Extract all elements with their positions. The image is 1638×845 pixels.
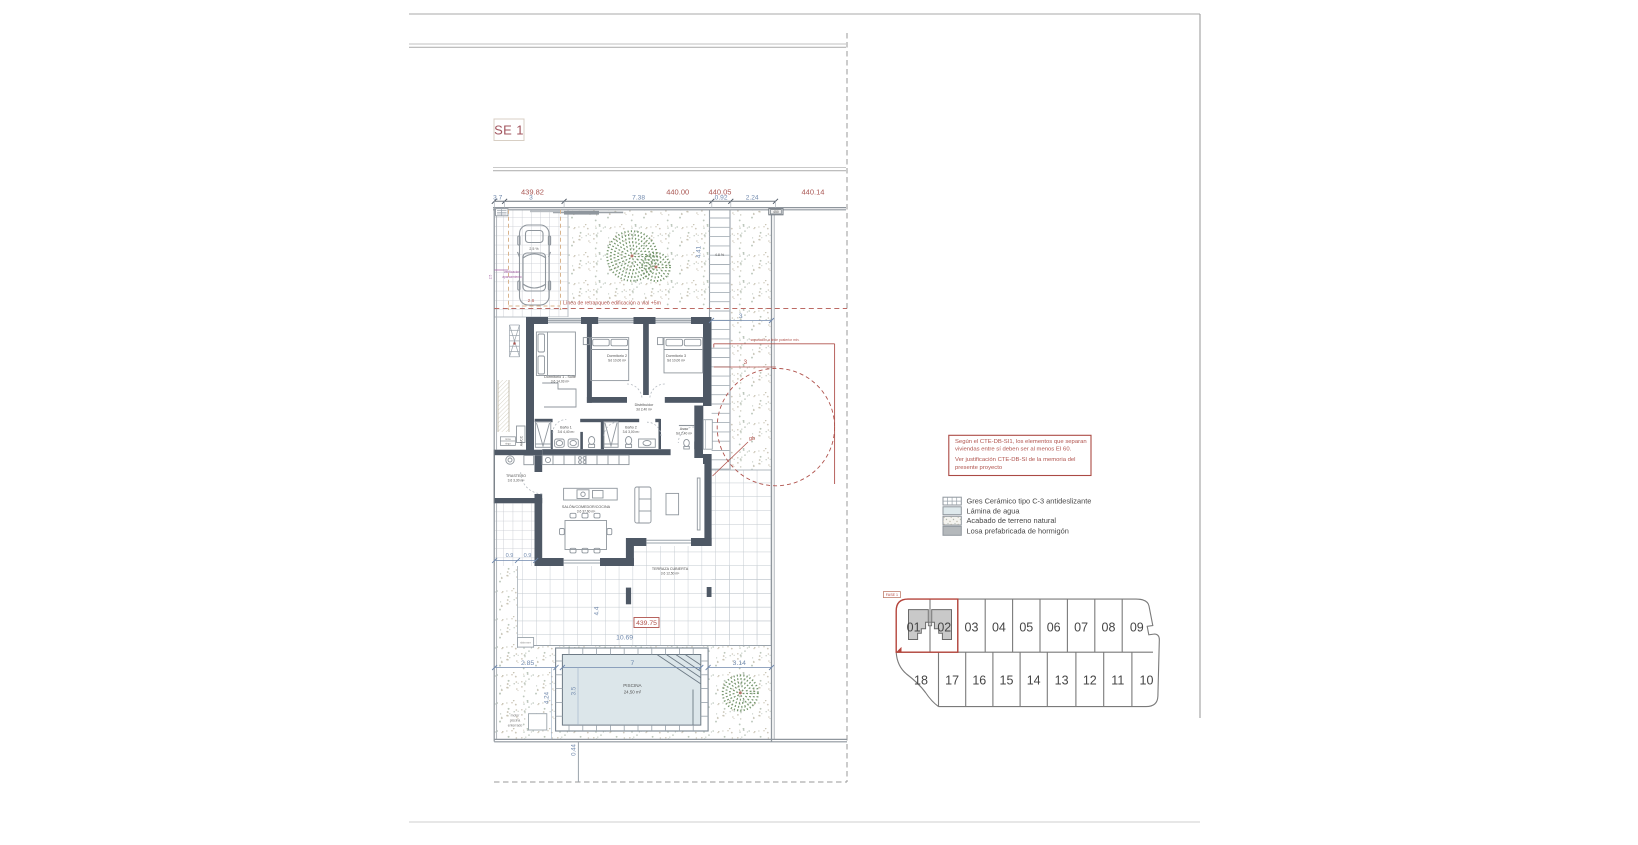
svg-text:gb: gb: [749, 436, 755, 442]
svg-text:enterrado: enterrado: [508, 724, 523, 728]
svg-text:0.44: 0.44: [572, 744, 578, 756]
svg-text:2,5 %: 2,5 %: [529, 247, 539, 251]
svg-text:Baño 1: Baño 1: [560, 426, 572, 430]
svg-text:TRASTERO: TRASTERO: [506, 474, 526, 478]
svg-text:08: 08: [1102, 620, 1116, 634]
svg-text:Baño 2: Baño 2: [625, 426, 637, 430]
svg-text:Acabado de terreno natural: Acabado de terreno natural: [967, 516, 1057, 525]
svg-text:11: 11: [1111, 673, 1124, 687]
svg-text:toma: toma: [505, 438, 511, 441]
svg-text:15: 15: [1000, 673, 1014, 687]
svg-text:3.14: 3.14: [733, 660, 746, 667]
svg-text:3: 3: [739, 313, 743, 320]
svg-text:presente proyecto: presente proyecto: [955, 465, 1003, 471]
svg-text:04: 04: [992, 620, 1006, 634]
svg-text:separación a linde posterior m: separación a linde posterior min.: [750, 338, 799, 342]
svg-text:3.6 14,03 m²: 3.6 14,03 m²: [551, 380, 570, 384]
svg-text:AA/CC: AA/CC: [520, 435, 524, 446]
svg-text:3.6 4,40 m²: 3.6 4,40 m²: [558, 430, 576, 434]
svg-text:Aseo: Aseo: [680, 427, 688, 431]
svg-text:TERRAZA CUBIERTA: TERRAZA CUBIERTA: [652, 567, 689, 571]
svg-text:450: 450: [773, 210, 779, 214]
svg-text:riego: riego: [505, 443, 511, 446]
svg-text:viviendas entre sí deben ser a: viviendas entre sí deben ser al menos EI…: [955, 446, 1072, 452]
svg-text:439.75: 439.75: [636, 620, 657, 627]
svg-text:0.9: 0.9: [524, 553, 532, 559]
svg-text:2.5: 2.5: [489, 275, 493, 280]
svg-text:12: 12: [1083, 673, 1097, 687]
svg-text:SALÓN/COMEDOR/COCINA: SALÓN/COMEDOR/COCINA: [562, 504, 611, 509]
svg-text:3: 3: [743, 359, 747, 366]
svg-text:3.7: 3.7: [493, 195, 502, 202]
svg-text:3.6 12,50 m²: 3.6 12,50 m²: [661, 572, 680, 576]
svg-text:Dormitorio 2: Dormitorio 2: [607, 354, 627, 358]
svg-text:02: 02: [937, 620, 951, 634]
svg-text:03: 03: [965, 620, 979, 634]
svg-text:7.38: 7.38: [632, 195, 645, 202]
svg-text:3.6 3,00 m²: 3.6 3,00 m²: [623, 430, 641, 434]
svg-text:4.8 %: 4.8 %: [715, 253, 725, 257]
svg-text:440.14: 440.14: [802, 187, 825, 196]
svg-text:06: 06: [1047, 620, 1061, 634]
svg-text:Sd 10,00 m²: Sd 10,00 m²: [667, 359, 686, 363]
svg-text:7: 7: [631, 660, 635, 667]
svg-text:Gres Cerámico tipo C-3 antides: Gres Cerámico tipo C-3 antideslizante: [967, 497, 1092, 506]
svg-text:Dormitorio 3: Dormitorio 3: [666, 354, 686, 358]
svg-text:Según el CTE-DB-SI1, los eleme: Según el CTE-DB-SI1, los elementos que s…: [955, 439, 1087, 445]
svg-text:0.9: 0.9: [506, 553, 514, 559]
svg-text:13: 13: [1055, 673, 1069, 687]
svg-text:Lámina de agua: Lámina de agua: [967, 506, 1021, 515]
svg-text:motor: motor: [511, 714, 521, 718]
svg-text:aparcamiento: aparcamiento: [502, 275, 522, 279]
svg-text:07: 07: [1074, 620, 1088, 634]
svg-text:skimmer: skimmer: [520, 641, 531, 645]
svg-text:3d 2,40 m²: 3d 2,40 m²: [636, 408, 653, 412]
svg-text:17: 17: [945, 673, 959, 687]
svg-text:2.6: 2.6: [528, 298, 535, 304]
svg-text:3.5: 3.5: [571, 686, 578, 695]
svg-text:4.41: 4.41: [696, 245, 703, 258]
svg-text:Dormitorio 1 - Suite: Dormitorio 1 - Suite: [544, 375, 576, 379]
svg-text:Línea de retranqueo edificació: Línea de retranqueo edificación a vial +…: [563, 301, 661, 307]
svg-text:3: 3: [529, 195, 533, 202]
svg-text:FASE 1: FASE 1: [886, 593, 898, 597]
svg-text:18: 18: [914, 673, 928, 687]
svg-text:PISCINA: PISCINA: [623, 683, 642, 688]
svg-text:4.24: 4.24: [544, 691, 551, 704]
svg-text:05: 05: [1019, 620, 1033, 634]
svg-text:01: 01: [907, 620, 921, 634]
svg-text:Distribuidor: Distribuidor: [635, 403, 654, 407]
svg-text:16: 16: [972, 673, 986, 687]
svg-text:24,50 m²: 24,50 m²: [624, 690, 642, 695]
svg-text:14: 14: [1027, 673, 1041, 687]
svg-text:09: 09: [1130, 620, 1144, 634]
svg-text:Ver justificación CTE-DB-SI de: Ver justificación CTE-DB-SI de la memori…: [955, 457, 1075, 463]
svg-text:3.6 37,60 m²: 3.6 37,60 m²: [577, 510, 596, 514]
svg-text:Sd 2,40 m²: Sd 2,40 m²: [676, 432, 693, 436]
svg-text:0.92: 0.92: [715, 195, 728, 202]
svg-text:10: 10: [1140, 673, 1154, 687]
svg-text:SE 1: SE 1: [494, 123, 524, 138]
svg-text:2.85: 2.85: [521, 660, 534, 667]
svg-text:Sd 10,00 m²: Sd 10,00 m²: [608, 359, 627, 363]
svg-text:piscina: piscina: [510, 719, 521, 723]
svg-text:3.6 3,30 m²: 3.6 3,30 m²: [508, 479, 526, 483]
svg-text:Losa prefabricada de hormigón: Losa prefabricada de hormigón: [967, 526, 1069, 535]
svg-text:10.69: 10.69: [616, 635, 633, 642]
svg-text:2.24: 2.24: [746, 195, 759, 202]
svg-text:verificacion: verificacion: [504, 270, 520, 274]
svg-text:440.00: 440.00: [666, 187, 689, 196]
svg-text:4.4: 4.4: [594, 606, 601, 615]
